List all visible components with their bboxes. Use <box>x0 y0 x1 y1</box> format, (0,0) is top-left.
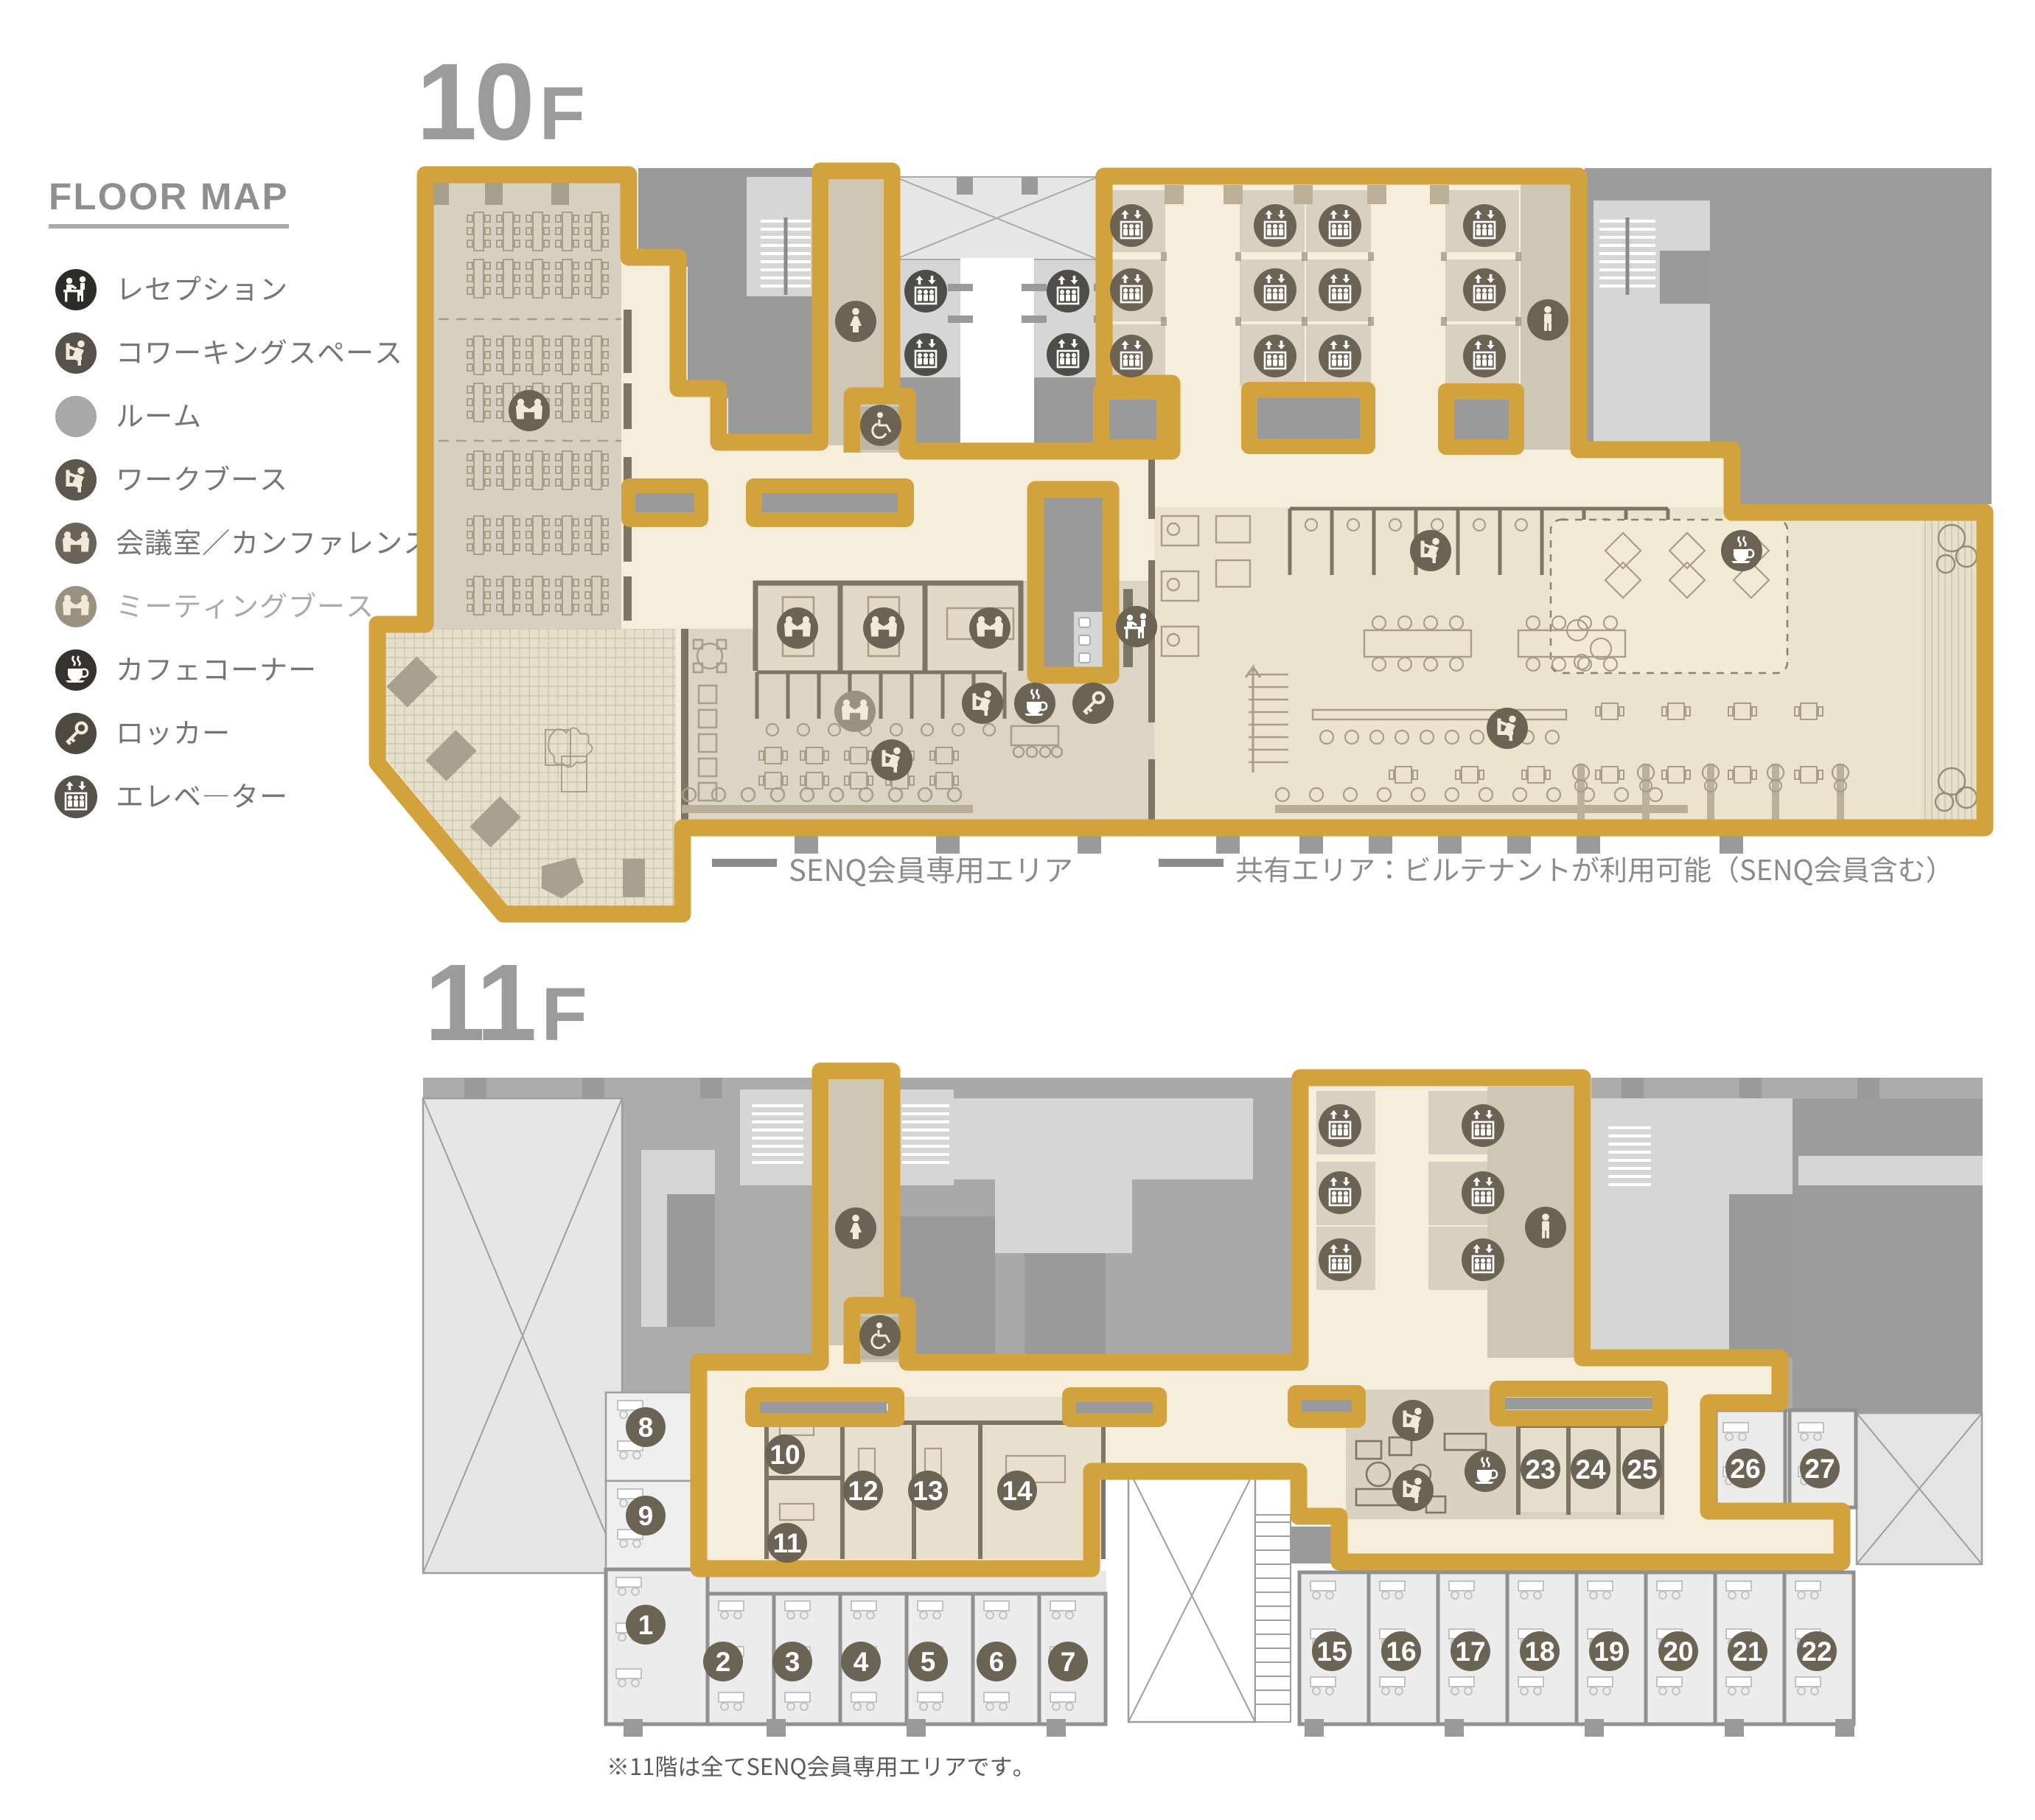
svg-text:6: 6 <box>989 1647 1005 1677</box>
svg-text:20: 20 <box>1663 1636 1693 1667</box>
svg-text:5: 5 <box>921 1647 936 1677</box>
svg-text:12: 12 <box>848 1476 878 1506</box>
svg-text:16: 16 <box>1386 1636 1416 1667</box>
svg-text:18: 18 <box>1524 1636 1554 1667</box>
svg-text:2: 2 <box>716 1647 731 1677</box>
svg-text:27: 27 <box>1804 1454 1835 1484</box>
svg-text:26: 26 <box>1730 1454 1760 1484</box>
svg-text:FLOOR MAP: FLOOR MAP <box>49 175 289 217</box>
svg-text:23: 23 <box>1525 1454 1555 1485</box>
svg-text:8: 8 <box>638 1412 654 1443</box>
svg-text:13: 13 <box>912 1476 943 1506</box>
svg-text:25: 25 <box>1627 1454 1657 1485</box>
svg-text:14: 14 <box>1002 1476 1033 1506</box>
svg-text:3: 3 <box>785 1647 800 1677</box>
svg-text:1: 1 <box>638 1610 654 1640</box>
svg-text:19: 19 <box>1594 1636 1624 1667</box>
svg-text:11: 11 <box>772 1528 801 1558</box>
svg-text:4: 4 <box>854 1647 869 1677</box>
svg-text:17: 17 <box>1455 1636 1485 1667</box>
svg-text:24: 24 <box>1575 1454 1606 1485</box>
svg-text:22: 22 <box>1801 1636 1832 1667</box>
svg-text:21: 21 <box>1732 1636 1762 1667</box>
svg-text:15: 15 <box>1316 1636 1347 1667</box>
svg-text:10: 10 <box>769 1440 800 1470</box>
svg-text:9: 9 <box>638 1501 654 1531</box>
svg-text:7: 7 <box>1061 1647 1076 1677</box>
